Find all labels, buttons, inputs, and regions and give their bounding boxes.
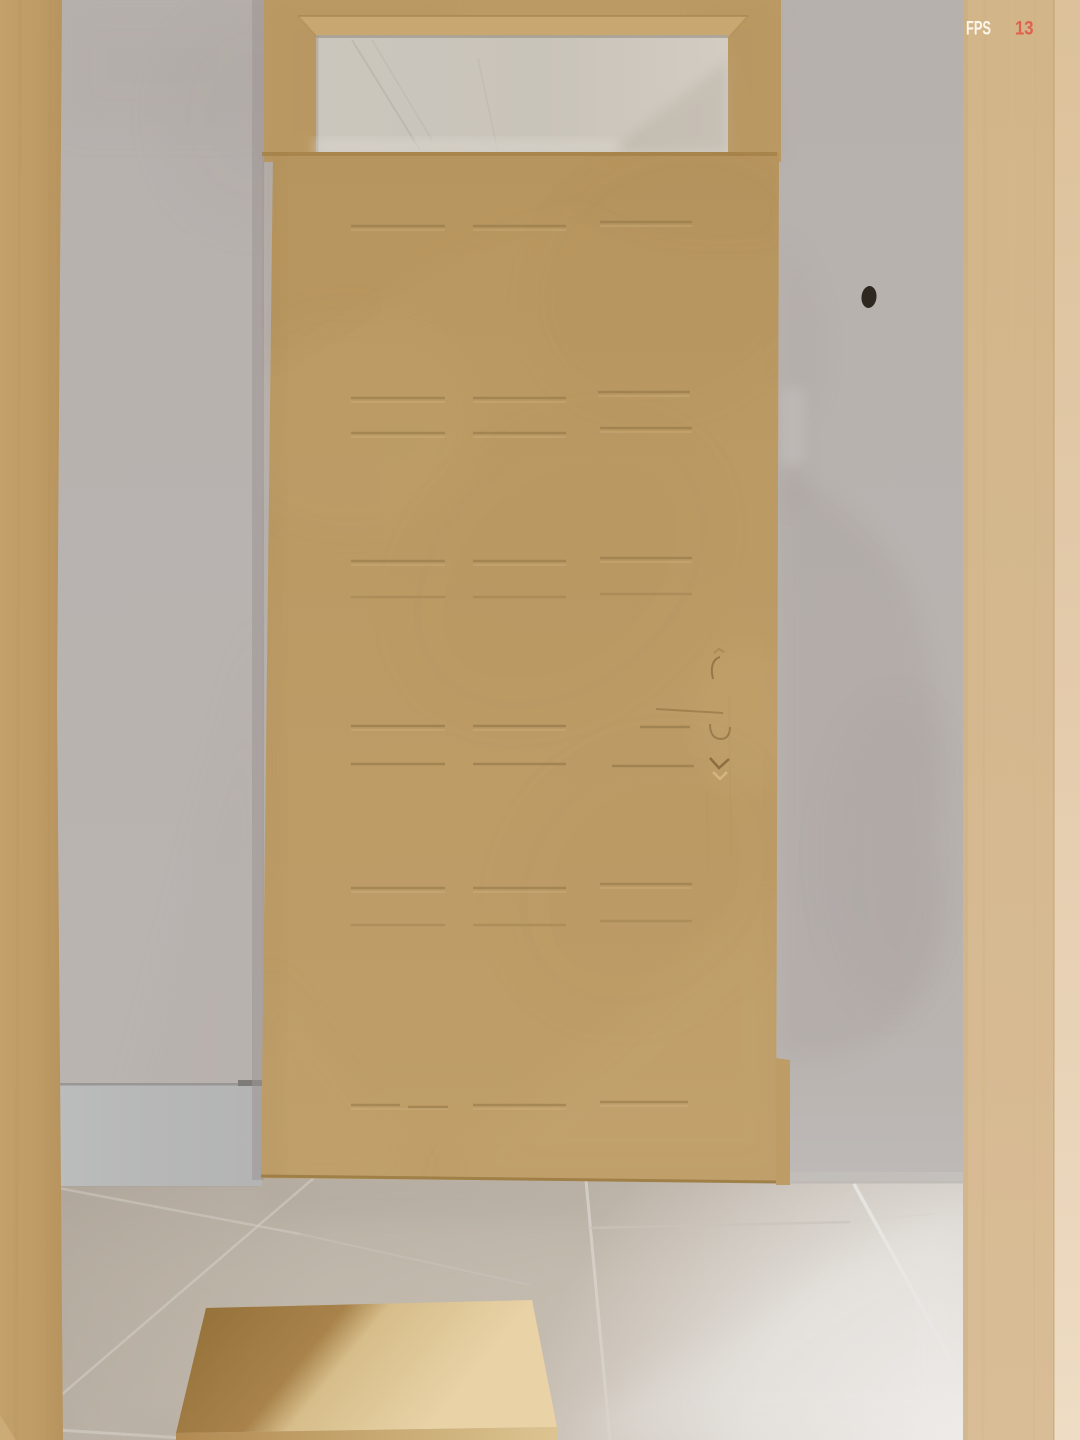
svg-text:13: 13 xyxy=(1015,19,1034,40)
svg-text:FPS: FPS xyxy=(966,19,991,40)
